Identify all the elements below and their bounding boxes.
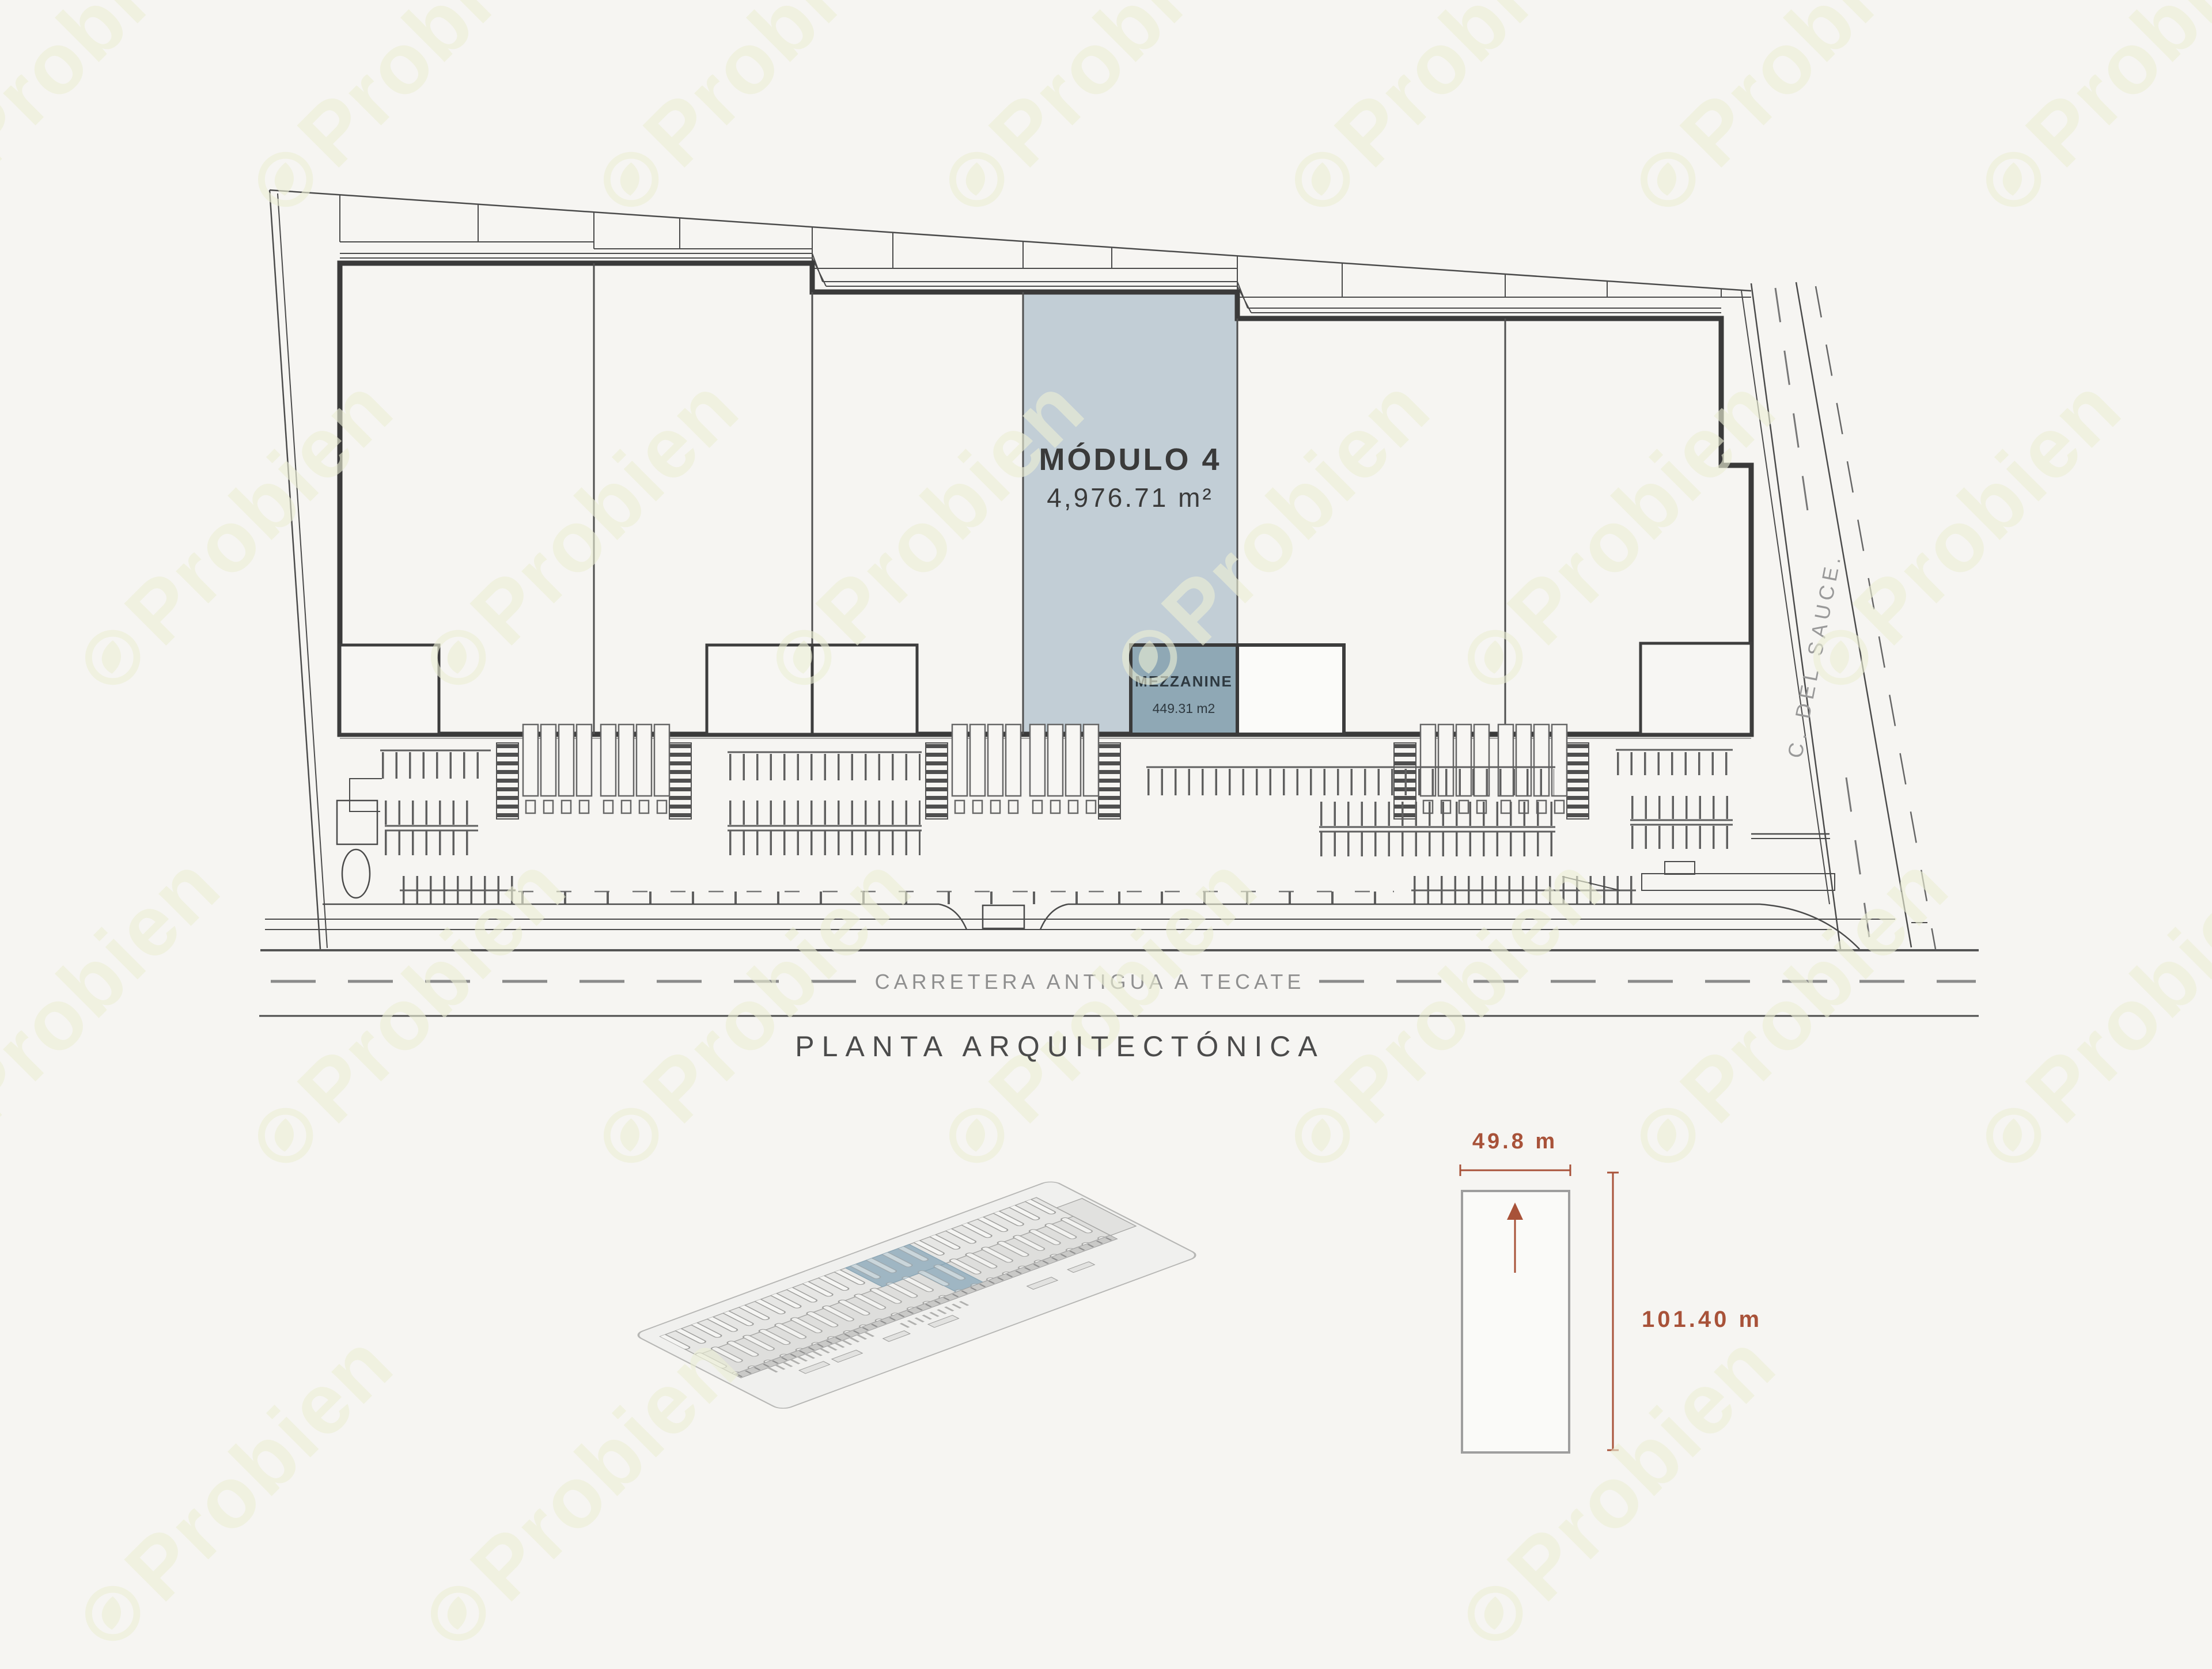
mezzanine-twin-box — [1237, 645, 1344, 734]
property-boundary — [270, 190, 1751, 949]
dimension-diagram: 49.8 m 101.40 m — [1406, 1112, 1820, 1480]
probien-logo-icon — [1973, 1094, 2054, 1175]
probien-logo-icon — [1455, 1572, 1536, 1653]
watermark-text: Probien — [106, 1314, 412, 1620]
module4-label: MÓDULO 4 — [1039, 442, 1221, 477]
plan-title: PLANTA ARQUITECTÓNICA — [0, 1030, 2120, 1063]
landscape-island — [342, 849, 370, 898]
office-box — [1641, 643, 1751, 734]
probien-logo-icon — [72, 1572, 153, 1653]
loading-dock-bays — [340, 725, 1751, 819]
street-del-sauce: C. DEL SAUCE. — [1751, 282, 1935, 949]
probien-logo-icon — [418, 1572, 499, 1653]
road-label: CARRETERA ANTIGUA A TECATE — [875, 970, 1305, 993]
entry-island — [983, 905, 1024, 928]
probien-logo-icon — [245, 1094, 326, 1175]
height-dimension-label: 101.40 m — [1642, 1307, 1762, 1332]
office-box — [707, 645, 812, 734]
floor-plan-drawing: MÓDULO 4 4,976.71 m² MEZZANINE 449.31 m2 — [0, 0, 2212, 1037]
site-plan-page: { "page": { "background": "#f6f5f2" }, "… — [0, 0, 2212, 1474]
watermark: Probien — [57, 1314, 412, 1669]
office-box — [812, 645, 917, 734]
building-3d-render — [599, 1128, 1233, 1473]
mezzanine-label: MEZZANINE — [1135, 673, 1233, 690]
module4-area-label: 4,976.71 m² — [1047, 483, 1213, 513]
mezzanine-area-label: 449.31 m2 — [1153, 701, 1215, 716]
height-dimension-line — [1607, 1173, 1619, 1450]
width-dimension-label: 49.8 m — [1472, 1129, 1558, 1154]
street-label: C. DEL SAUCE. — [1783, 551, 1846, 760]
service-aisles — [265, 904, 1895, 949]
left-yard-details — [337, 801, 377, 898]
width-dimension-line — [1460, 1164, 1570, 1176]
probien-logo-icon — [1282, 1094, 1363, 1175]
road-carretera: CARRETERA ANTIGUA A TECATE — [259, 950, 1979, 1016]
office-box — [340, 645, 439, 734]
